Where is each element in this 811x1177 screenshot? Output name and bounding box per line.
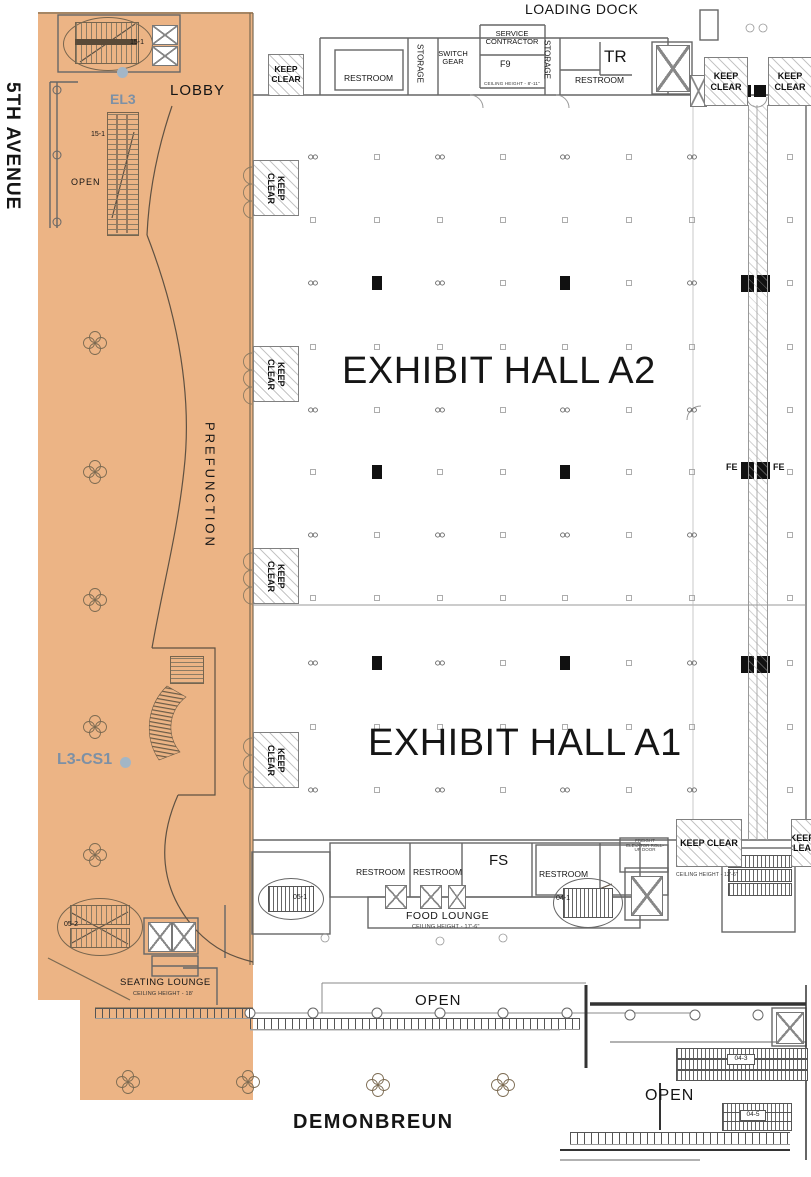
room-tr-label: TR [604, 48, 627, 66]
door-swing-arc [244, 201, 253, 218]
column-marker [690, 725, 695, 730]
column-marker [311, 218, 316, 223]
column-marker [375, 155, 380, 160]
seating-ceiling-note: CEILING HEIGHT - 18' [133, 991, 193, 997]
loading-dock-label: LOADING DOCK [525, 2, 638, 17]
column-marker [627, 533, 632, 538]
floor-port-marker [440, 533, 444, 537]
door-swing-arc [244, 755, 253, 772]
column-marker [375, 788, 380, 793]
column-marker [311, 470, 316, 475]
keep-clear-box-8: KEEP CLEAR [676, 819, 742, 867]
floor-port-marker [309, 408, 313, 412]
unit-el3-label: EL3 [110, 92, 136, 107]
room-fs-label: FS [489, 853, 508, 869]
column-marker [627, 470, 632, 475]
structural-column [560, 276, 570, 290]
stair-strip-lounge [95, 1008, 253, 1019]
planter-quatrefoil [90, 461, 101, 472]
column-marker [375, 408, 380, 413]
column-marker [627, 596, 632, 601]
grid-bubble [321, 934, 329, 942]
planter-quatrefoil [90, 728, 101, 739]
elevator-lobby-1 [152, 25, 178, 45]
expansion-joint-strip [748, 105, 768, 840]
column-marker [311, 596, 316, 601]
planter-quatrefoil [90, 844, 101, 855]
column-marker [375, 533, 380, 538]
column-marker [501, 408, 506, 413]
column-marker [788, 596, 793, 601]
storage-label-1: STORAGE [415, 44, 423, 90]
planter-quatrefoil [96, 850, 107, 861]
floor-port-marker [688, 788, 692, 792]
stair-pod-upper [170, 656, 204, 684]
open-balcony-label: OPEN [415, 993, 462, 1009]
door-swing-arc [244, 387, 253, 404]
column-marker [563, 345, 568, 350]
unit-15-1-top: 15-1 [130, 39, 144, 46]
f9-ceiling-note: CEILING HEIGHT - 8'-11" [484, 81, 540, 86]
elevator-food-2 [420, 885, 442, 909]
floor-port-marker [688, 533, 692, 537]
floor-port-marker [436, 533, 440, 537]
column-marker [438, 345, 443, 350]
lobby-label: LOBBY [170, 83, 225, 99]
column-marker [788, 725, 793, 730]
hall-a2-title: EXHIBIT HALL A2 [342, 352, 656, 392]
door-swing-arc [244, 587, 253, 604]
street-demonbreun: DEMONBREUN [293, 1112, 454, 1133]
column-marker [501, 596, 506, 601]
floor-port-marker [436, 661, 440, 665]
structural-column [372, 276, 382, 290]
floor-port-marker [565, 788, 569, 792]
column-marker [501, 281, 506, 286]
column-marker [438, 596, 443, 601]
floor-port-marker [436, 155, 440, 159]
floor-port-marker [440, 661, 444, 665]
door-swing-arc [244, 738, 253, 755]
column-marker [690, 596, 695, 601]
column-marker [627, 155, 632, 160]
column-marker [375, 596, 380, 601]
planter-quatrefoil [123, 1071, 134, 1082]
escalator-05-2-b [70, 928, 130, 948]
restroom-top-2: RESTROOM [575, 76, 624, 85]
column-marker [627, 408, 632, 413]
room-f9-label: F9 [500, 60, 511, 69]
railing-column [625, 1010, 635, 1020]
keep-clear-box-9: KEEP CLEAR [791, 819, 811, 867]
planter-quatrefoil [96, 595, 107, 606]
elevator-food-1 [385, 885, 407, 909]
column-marker [690, 218, 695, 223]
planter-quatrefoil [379, 1080, 390, 1091]
elevator-lounge-2 [172, 922, 196, 952]
planter-quatrefoil [84, 338, 95, 349]
column-marker [690, 470, 695, 475]
floor-port-marker [309, 155, 313, 159]
floor-port-marker [565, 533, 569, 537]
railing-column [562, 1008, 572, 1018]
floor-port-marker [565, 155, 569, 159]
hall-a1-title: EXHIBIT HALL A1 [368, 724, 682, 764]
escalator-lobby-long [107, 112, 139, 236]
column-marker [501, 218, 506, 223]
grid-bubble [436, 937, 444, 945]
column-marker [311, 725, 316, 730]
railing-column [753, 1010, 763, 1020]
floor-port-marker [440, 155, 444, 159]
column-marker [788, 155, 793, 160]
structural-column [560, 656, 570, 670]
column-marker [788, 345, 793, 350]
planter-quatrefoil [243, 1083, 254, 1094]
floor-port-marker [436, 788, 440, 792]
unit-05-1-label: 05-1 [293, 894, 307, 901]
planter-quatrefoil [129, 1077, 140, 1088]
column-marker [788, 470, 793, 475]
unit-15-1-mid: 15-1 [91, 131, 105, 138]
grid-bubble [746, 24, 754, 32]
open-bottom-right-label: OPEN [645, 1088, 694, 1105]
floor-port-marker [436, 408, 440, 412]
floor-port-marker [688, 155, 692, 159]
keep-clear-box-1: KEEP CLEAR [268, 54, 304, 96]
l3cs1-location-dot [120, 757, 131, 768]
door-swing-arc [244, 167, 253, 184]
floor-port-marker [561, 155, 565, 159]
column-marker [788, 281, 793, 286]
floor-port-marker [436, 281, 440, 285]
floor-port-marker [313, 281, 317, 285]
restroom-bottom-3: RESTROOM [539, 870, 588, 879]
column-marker [501, 470, 506, 475]
planter-quatrefoil [96, 338, 107, 349]
stair-strip-bottom-right [570, 1132, 790, 1145]
planter-quatrefoil [90, 716, 101, 727]
keep-clear-box-5: KEEP CLEAR [253, 732, 299, 788]
keep-clear-box-7: KEEP CLEAR [768, 57, 811, 106]
railing-column [498, 1008, 508, 1018]
column-marker [438, 218, 443, 223]
restroom-top-1: RESTROOM [344, 74, 393, 83]
elevator-top-right [656, 45, 690, 92]
escalator-05-1 [268, 886, 314, 912]
column-marker [563, 218, 568, 223]
planter-quatrefoil [249, 1077, 260, 1088]
planter-quatrefoil [90, 601, 101, 612]
planter-quatrefoil [90, 589, 101, 600]
elevator-04-1-side [631, 876, 663, 916]
floor-port-marker [561, 533, 565, 537]
storage-label-2: STORAGE [542, 40, 550, 90]
planter-quatrefoil [90, 332, 101, 343]
planter-quatrefoil [84, 595, 95, 606]
elevator-lounge-1 [148, 922, 172, 952]
floor-port-marker [440, 408, 444, 412]
keep-clear-box-3: KEEP CLEAR [253, 346, 299, 402]
service-contractor-label: SERVICE CONTRACTOR [481, 30, 543, 46]
floor-port-marker [309, 533, 313, 537]
column-marker [788, 218, 793, 223]
escalator-04-3-c [676, 1070, 808, 1081]
seating-lounge-label: SEATING LOUNGE [120, 978, 211, 988]
floor-port-marker [688, 661, 692, 665]
unit-04-1-label: 04-1 [556, 895, 570, 902]
column-marker [690, 345, 695, 350]
structural-column [560, 465, 570, 479]
column-marker [438, 470, 443, 475]
planter-quatrefoil [237, 1077, 248, 1088]
door-swing-arc [244, 553, 253, 570]
escalator-05-2-a [70, 905, 130, 925]
floor-port-marker [313, 533, 317, 537]
planter-quatrefoil [373, 1086, 384, 1097]
column-marker [788, 408, 793, 413]
ceiling-12-6-note: CEILING HEIGHT - 12'-6" [676, 872, 738, 878]
column-marker [501, 661, 506, 666]
escalator-04-5-c [722, 1121, 792, 1131]
floor-port-marker [440, 281, 444, 285]
planter-quatrefoil [84, 467, 95, 478]
street-5th-avenue: 5TH AVENUE [2, 82, 22, 242]
floor-port-marker [565, 408, 569, 412]
food-ceiling-note: CEILING HEIGHT - 17'-6" [412, 924, 480, 930]
planter-quatrefoil [90, 856, 101, 867]
column-marker [788, 661, 793, 666]
door-swing-arc [244, 772, 253, 789]
railing-column [690, 1010, 700, 1020]
keep-clear-box-2: KEEP CLEAR [253, 160, 299, 216]
unit-05-2-label: 05-2 [64, 921, 78, 928]
floor-port-marker [313, 661, 317, 665]
planter-quatrefoil [243, 1071, 254, 1082]
unit-l3cs1-label: L3-CS1 [57, 752, 112, 769]
door-swing-arc [244, 353, 253, 370]
door-swing-arc [244, 570, 253, 587]
planter-quatrefoil [123, 1083, 134, 1094]
planter-quatrefoil [96, 467, 107, 478]
elevator-bottom-right [776, 1012, 804, 1044]
column-marker [563, 596, 568, 601]
column-marker [627, 788, 632, 793]
switch-gear-label: SWITCH GEAR [437, 50, 469, 66]
elevator-lobby-2 [152, 46, 178, 66]
curved-stair [149, 686, 186, 760]
unit-04-5-label: 04-5 [740, 1110, 766, 1121]
fe-left-label: FE [726, 463, 738, 472]
floor-port-marker [313, 788, 317, 792]
planter-quatrefoil [492, 1080, 503, 1091]
prefunction-label: PREFUNCTION [203, 422, 217, 672]
stair-strip-balcony [250, 1018, 580, 1030]
column-marker [501, 345, 506, 350]
open-lobby-label: OPEN [71, 178, 101, 187]
structural-column [372, 656, 382, 670]
floor-port-marker [561, 788, 565, 792]
planter-quatrefoil [117, 1077, 128, 1088]
railing-column [372, 1008, 382, 1018]
railing-column [308, 1008, 318, 1018]
floor-port-marker [440, 788, 444, 792]
grid-bubble [759, 24, 767, 32]
restroom-bottom-2: RESTROOM [413, 868, 462, 877]
escalator-04-1 [563, 888, 613, 918]
elevator-food-3 [448, 885, 466, 909]
food-lounge-label: FOOD LOUNGE [406, 911, 489, 922]
floor-port-marker [561, 408, 565, 412]
column-marker [501, 533, 506, 538]
column-marker [788, 788, 793, 793]
floor-port-marker [313, 408, 317, 412]
column-marker [375, 218, 380, 223]
escalator-15-1-band [75, 39, 137, 45]
keep-clear-box-4: KEEP CLEAR [253, 548, 299, 604]
railing-column [435, 1008, 445, 1018]
column-marker [375, 345, 380, 350]
floor-port-marker [309, 281, 313, 285]
keep-clear-box-6: KEEP CLEAR [704, 57, 748, 106]
planter-quatrefoil [84, 722, 95, 733]
floor-port-marker [688, 281, 692, 285]
floor-port-marker [309, 788, 313, 792]
grid-bubble [499, 934, 507, 942]
structural-column [372, 465, 382, 479]
planter-quatrefoil [96, 722, 107, 733]
unit-04-3-label: 04-3 [727, 1054, 755, 1065]
column-marker [627, 345, 632, 350]
column-marker [627, 281, 632, 286]
el3-location-dot [117, 67, 128, 78]
planter-quatrefoil [504, 1080, 515, 1091]
floor-port-marker [309, 661, 313, 665]
escalator-bank-mid-3 [728, 883, 792, 896]
column-marker [311, 345, 316, 350]
column-marker [788, 533, 793, 538]
planter-quatrefoil [373, 1074, 384, 1085]
planter-quatrefoil [367, 1080, 378, 1091]
column-marker [501, 155, 506, 160]
restroom-bottom-1: RESTROOM [356, 868, 405, 877]
planter-quatrefoil [498, 1074, 509, 1085]
floor-port-marker [313, 155, 317, 159]
fe-right-label: FE [773, 463, 785, 472]
column-marker [627, 218, 632, 223]
planter-quatrefoil [498, 1086, 509, 1097]
column-marker [501, 788, 506, 793]
column-marker [627, 661, 632, 666]
floorplan-canvas: KEEP CLEAR KEEP CLEAR KEEP CLEAR KEEP CL… [0, 0, 811, 1177]
planter-quatrefoil [90, 473, 101, 484]
freight-elevator-note: FREIGHT ELEVATOR ROLL-UP DOOR [624, 839, 666, 853]
door-swing-arc [244, 370, 253, 387]
planter-quatrefoil [84, 850, 95, 861]
planter-quatrefoil [90, 344, 101, 355]
door-swing-arc [244, 184, 253, 201]
